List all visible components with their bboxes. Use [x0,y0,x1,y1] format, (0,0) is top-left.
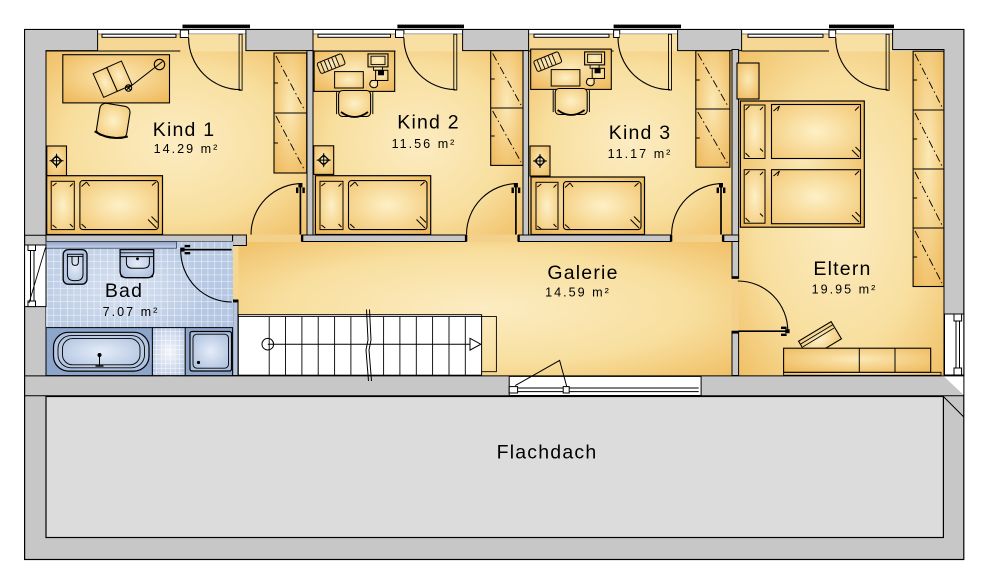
svg-text:Bad: Bad [105,280,143,302]
svg-text:19.95 m²: 19.95 m² [812,283,878,297]
svg-text:11.56 m²: 11.56 m² [392,137,457,151]
svg-text:Flachdach: Flachdach [497,441,598,463]
svg-text:Galerie: Galerie [547,262,618,284]
svg-text:11.17 m²: 11.17 m² [608,147,673,161]
svg-text:14.59 m²: 14.59 m² [545,286,611,300]
svg-text:Kind 2: Kind 2 [397,112,460,134]
svg-text:Eltern: Eltern [813,258,871,280]
svg-text:Kind 1: Kind 1 [153,119,216,141]
svg-text:Kind 3: Kind 3 [609,122,672,144]
svg-text:14.29 m²: 14.29 m² [154,142,220,156]
svg-text:7.07 m²: 7.07 m² [103,305,160,319]
